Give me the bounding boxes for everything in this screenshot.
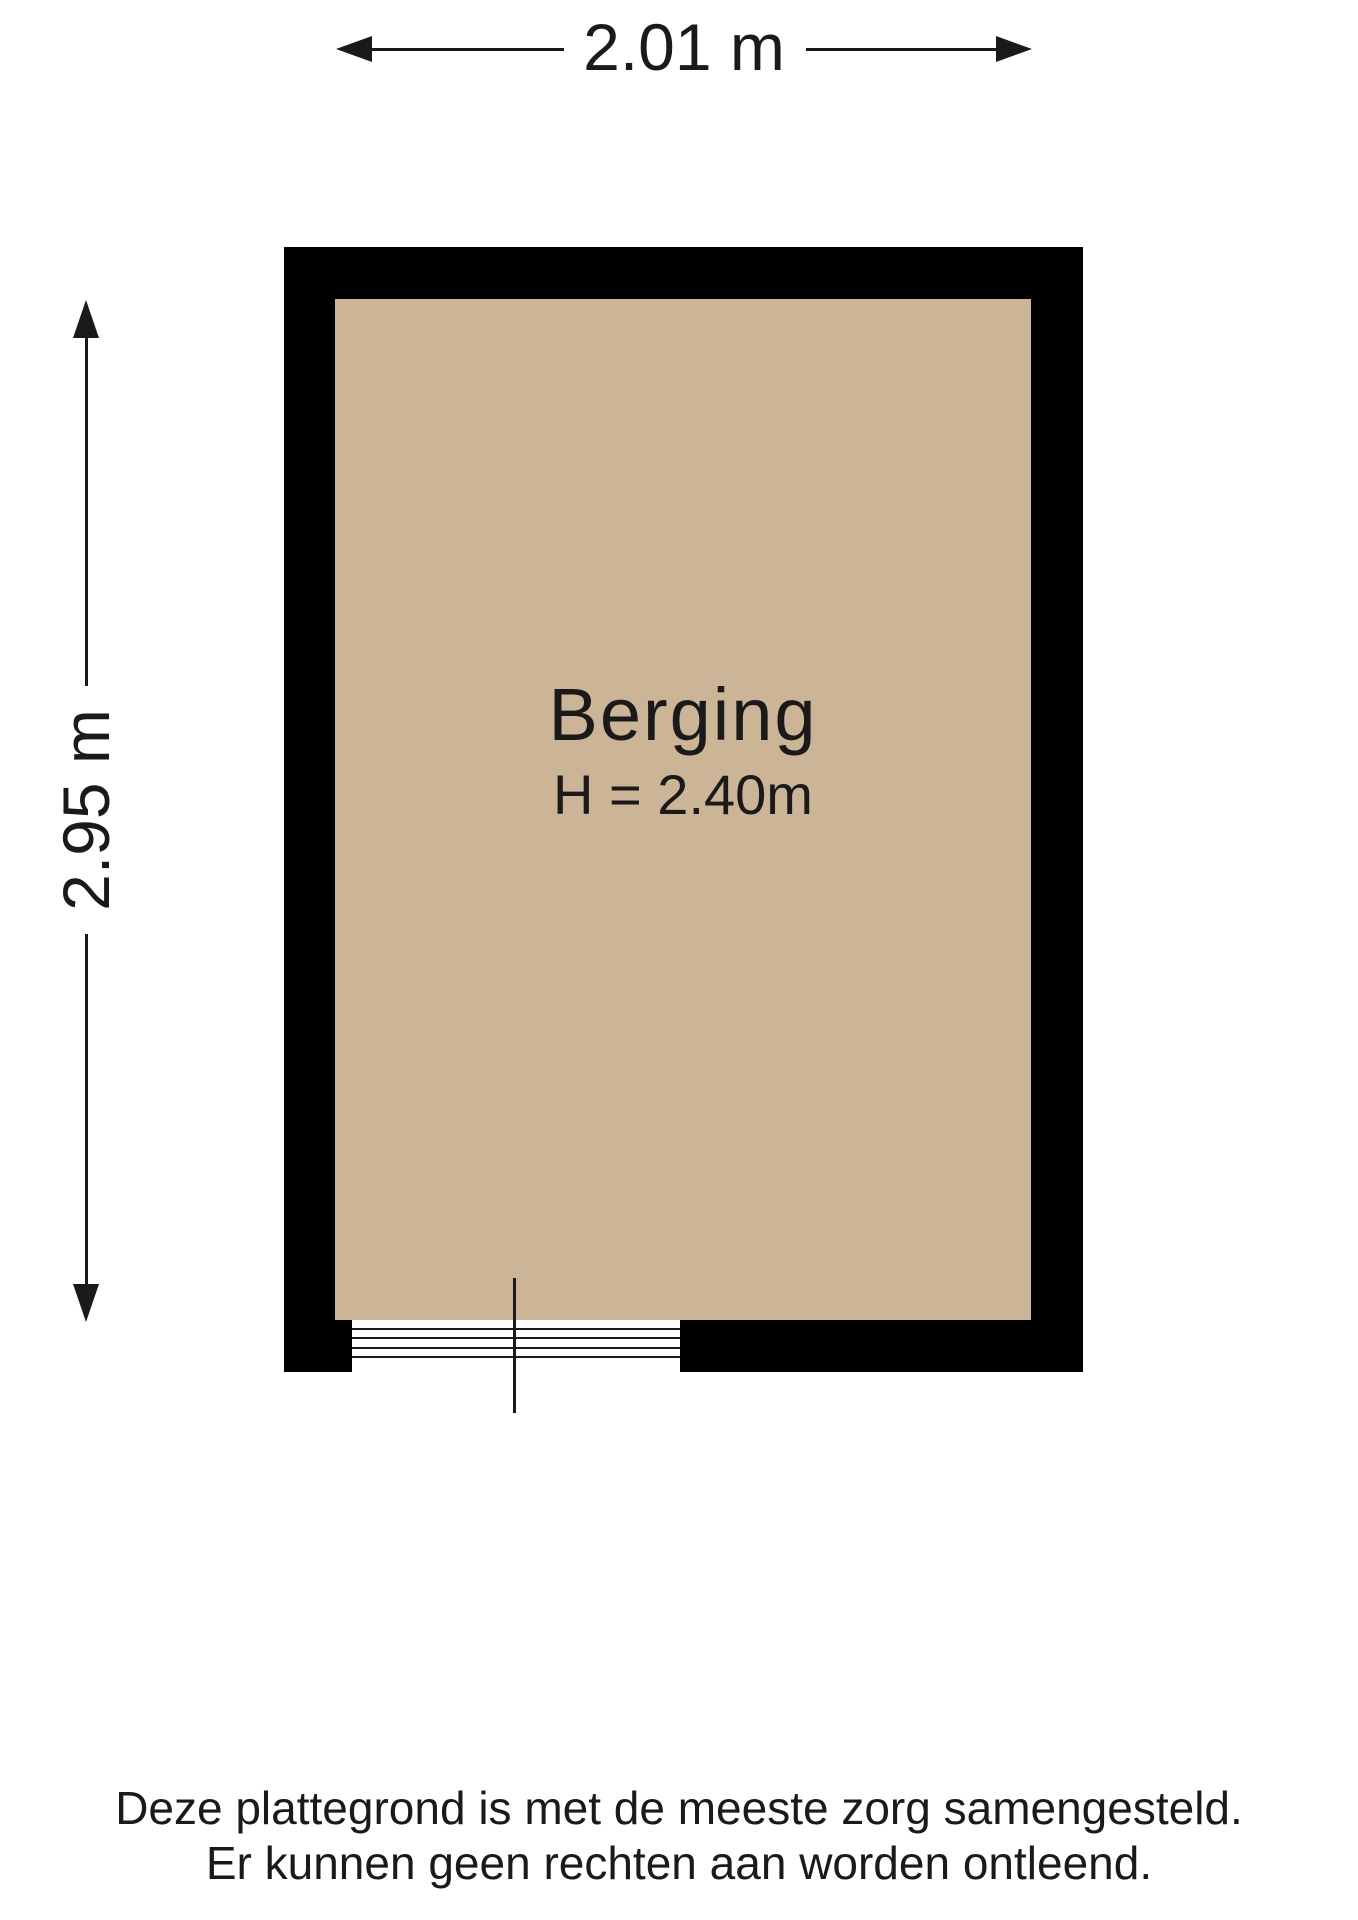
arrow-up-icon <box>73 300 99 338</box>
disclaimer-line2: Er kunnen geen rechten aan worden ontlee… <box>0 1836 1358 1891</box>
door-opening <box>352 1320 680 1372</box>
floorplan-canvas: 2.01 m 2.95 m Berging H = 2.40m Deze pla… <box>0 0 1358 1920</box>
arrow-right-icon <box>996 36 1032 62</box>
disclaimer-line1: Deze plattegrond is met de meeste zorg s… <box>0 1781 1358 1836</box>
door-swing-line <box>513 1278 516 1413</box>
room-ceiling-height-label: H = 2.40m <box>335 767 1031 823</box>
door-threshold-line <box>352 1328 680 1330</box>
door-threshold-line <box>352 1347 680 1349</box>
room-name-label: Berging <box>335 678 1031 752</box>
width-dimension-line-right <box>806 48 1002 51</box>
height-dimension-label: 2.95 m <box>53 709 119 911</box>
door-threshold-line <box>352 1356 680 1358</box>
height-dimension-line-top <box>85 334 88 686</box>
arrow-down-icon <box>73 1284 99 1322</box>
door-threshold-line <box>352 1337 680 1339</box>
height-dimension-line-bottom <box>85 934 88 1284</box>
disclaimer: Deze plattegrond is met de meeste zorg s… <box>0 1781 1358 1891</box>
width-dimension-label: 2.01 m <box>336 14 1032 80</box>
